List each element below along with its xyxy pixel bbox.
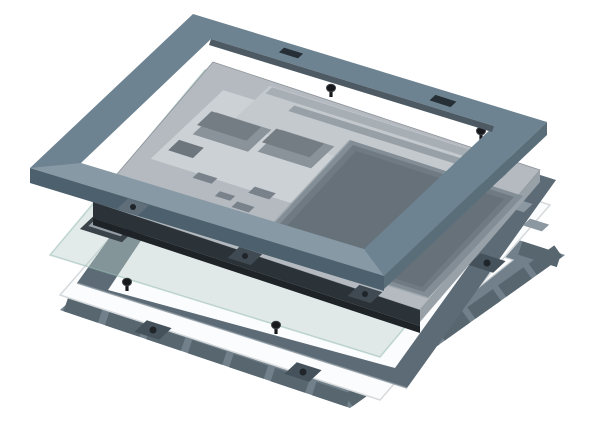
screw-head: [272, 321, 281, 329]
tab-screw-hole: [150, 327, 157, 334]
boss-screw-hole: [130, 204, 136, 210]
screw-head: [123, 278, 132, 286]
tab-screw-hole: [484, 260, 491, 267]
cad-viewport: [0, 0, 600, 433]
screw-head: [327, 84, 336, 92]
lug-screw-hole: [242, 253, 248, 259]
tab-screw-hole: [300, 369, 307, 376]
lug-screw-hole: [362, 291, 368, 297]
exploded-view-drawing: [0, 0, 600, 433]
